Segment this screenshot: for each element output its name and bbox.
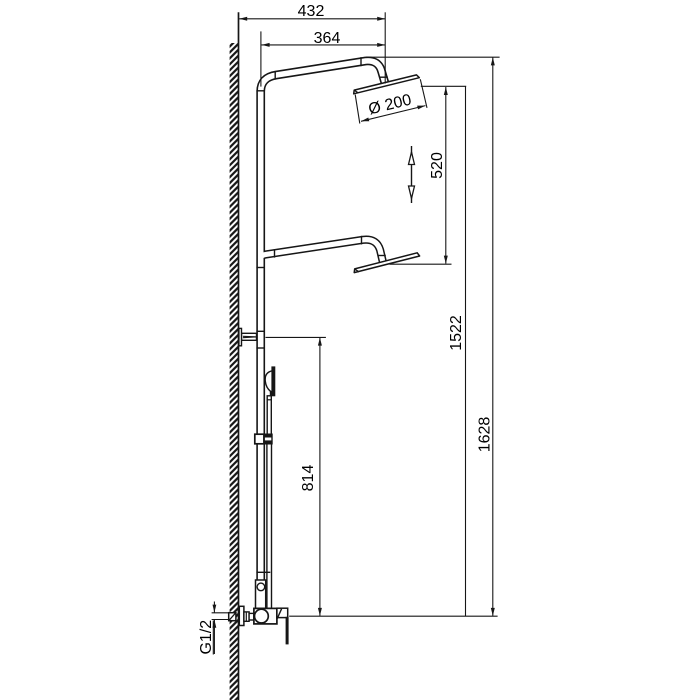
svg-text:364: 364 — [314, 30, 341, 47]
svg-text:432: 432 — [298, 3, 325, 20]
svg-text:520: 520 — [429, 152, 446, 179]
svg-text:1628: 1628 — [476, 417, 493, 453]
svg-text:814: 814 — [300, 465, 317, 492]
svg-text:G1/2: G1/2 — [198, 620, 215, 655]
svg-text:1522: 1522 — [448, 315, 465, 351]
